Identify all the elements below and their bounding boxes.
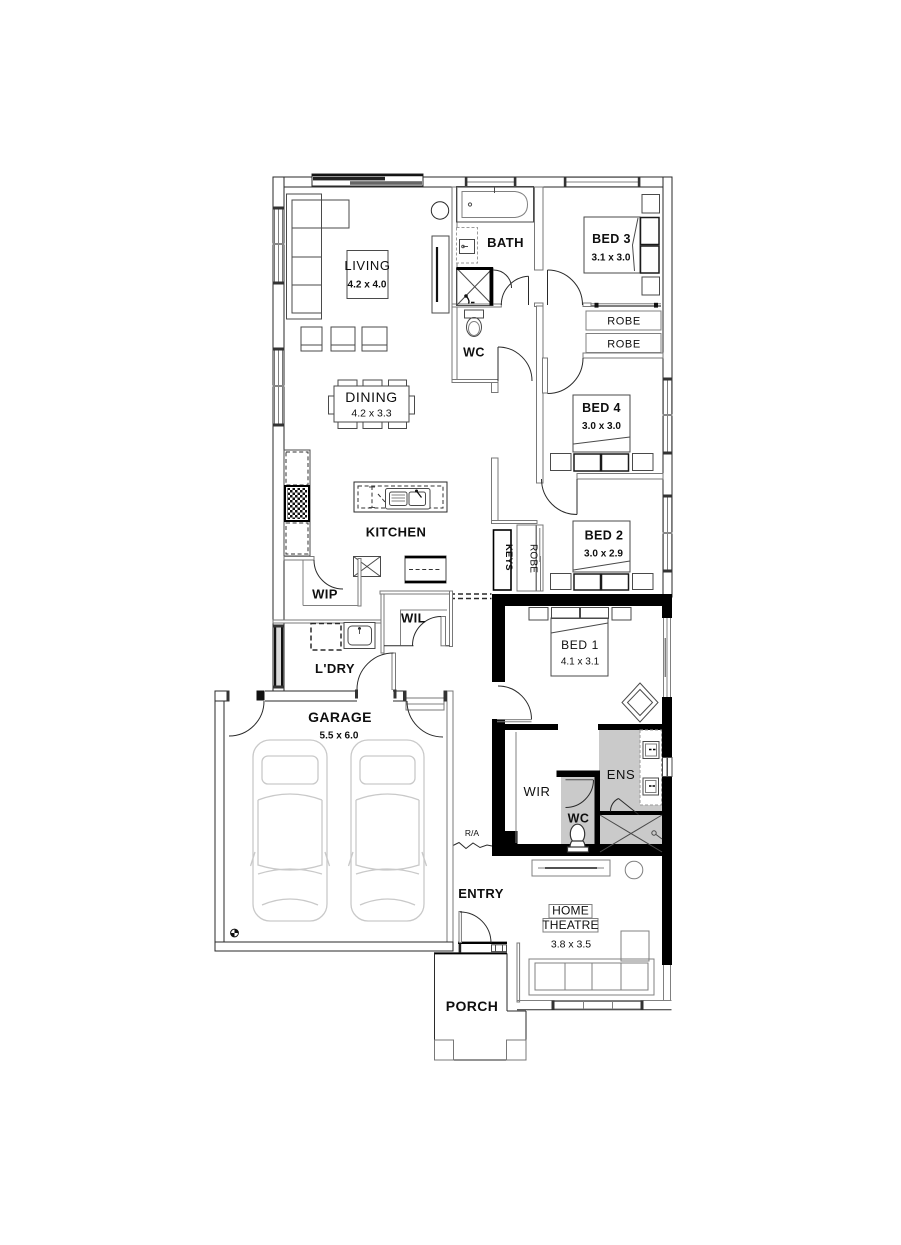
svg-text:WIL: WIL	[401, 611, 426, 626]
svg-text:BATH: BATH	[487, 235, 524, 250]
svg-text:L'DRY: L'DRY	[315, 661, 355, 676]
svg-text:WC: WC	[463, 346, 485, 360]
svg-text:4.2 x 3.3: 4.2 x 3.3	[351, 408, 391, 420]
svg-text:WC: WC	[568, 812, 590, 826]
svg-text:BED 1: BED 1	[561, 638, 599, 652]
svg-text:ROBE: ROBE	[528, 544, 539, 573]
svg-text:5.5 x 6.0: 5.5 x 6.0	[320, 731, 359, 742]
svg-text:BED 2: BED 2	[585, 529, 624, 543]
svg-text:3.8 x 3.5: 3.8 x 3.5	[551, 939, 591, 951]
svg-text:ROBE: ROBE	[607, 339, 641, 351]
svg-text:ENS: ENS	[607, 767, 636, 782]
svg-text:ROBE: ROBE	[607, 316, 641, 328]
svg-text:4.1 x 3.1: 4.1 x 3.1	[561, 657, 600, 668]
svg-text:BED 3: BED 3	[592, 232, 631, 246]
svg-text:PORCH: PORCH	[446, 998, 499, 1014]
svg-text:3.0 x 2.9: 3.0 x 2.9	[584, 549, 623, 560]
svg-text:4.2 x 4.0: 4.2 x 4.0	[348, 280, 387, 291]
svg-text:BED 4: BED 4	[582, 401, 621, 415]
svg-text:HOME: HOME	[552, 904, 589, 918]
svg-text:THEATRE: THEATRE	[542, 918, 599, 932]
svg-text:DINING: DINING	[345, 389, 398, 405]
svg-text:WIP: WIP	[312, 587, 338, 602]
svg-text:R/A: R/A	[465, 828, 480, 838]
svg-text:ENTRY: ENTRY	[458, 886, 504, 901]
svg-text:KEYS: KEYS	[503, 544, 514, 571]
svg-text:3.1 x 3.0: 3.1 x 3.0	[592, 253, 631, 264]
svg-text:GARAGE: GARAGE	[308, 709, 372, 725]
svg-text:WIR: WIR	[523, 784, 550, 799]
svg-text:LIVING: LIVING	[344, 258, 390, 273]
svg-text:KITCHEN: KITCHEN	[366, 525, 427, 540]
svg-text:3.0 x 3.0: 3.0 x 3.0	[582, 421, 621, 432]
